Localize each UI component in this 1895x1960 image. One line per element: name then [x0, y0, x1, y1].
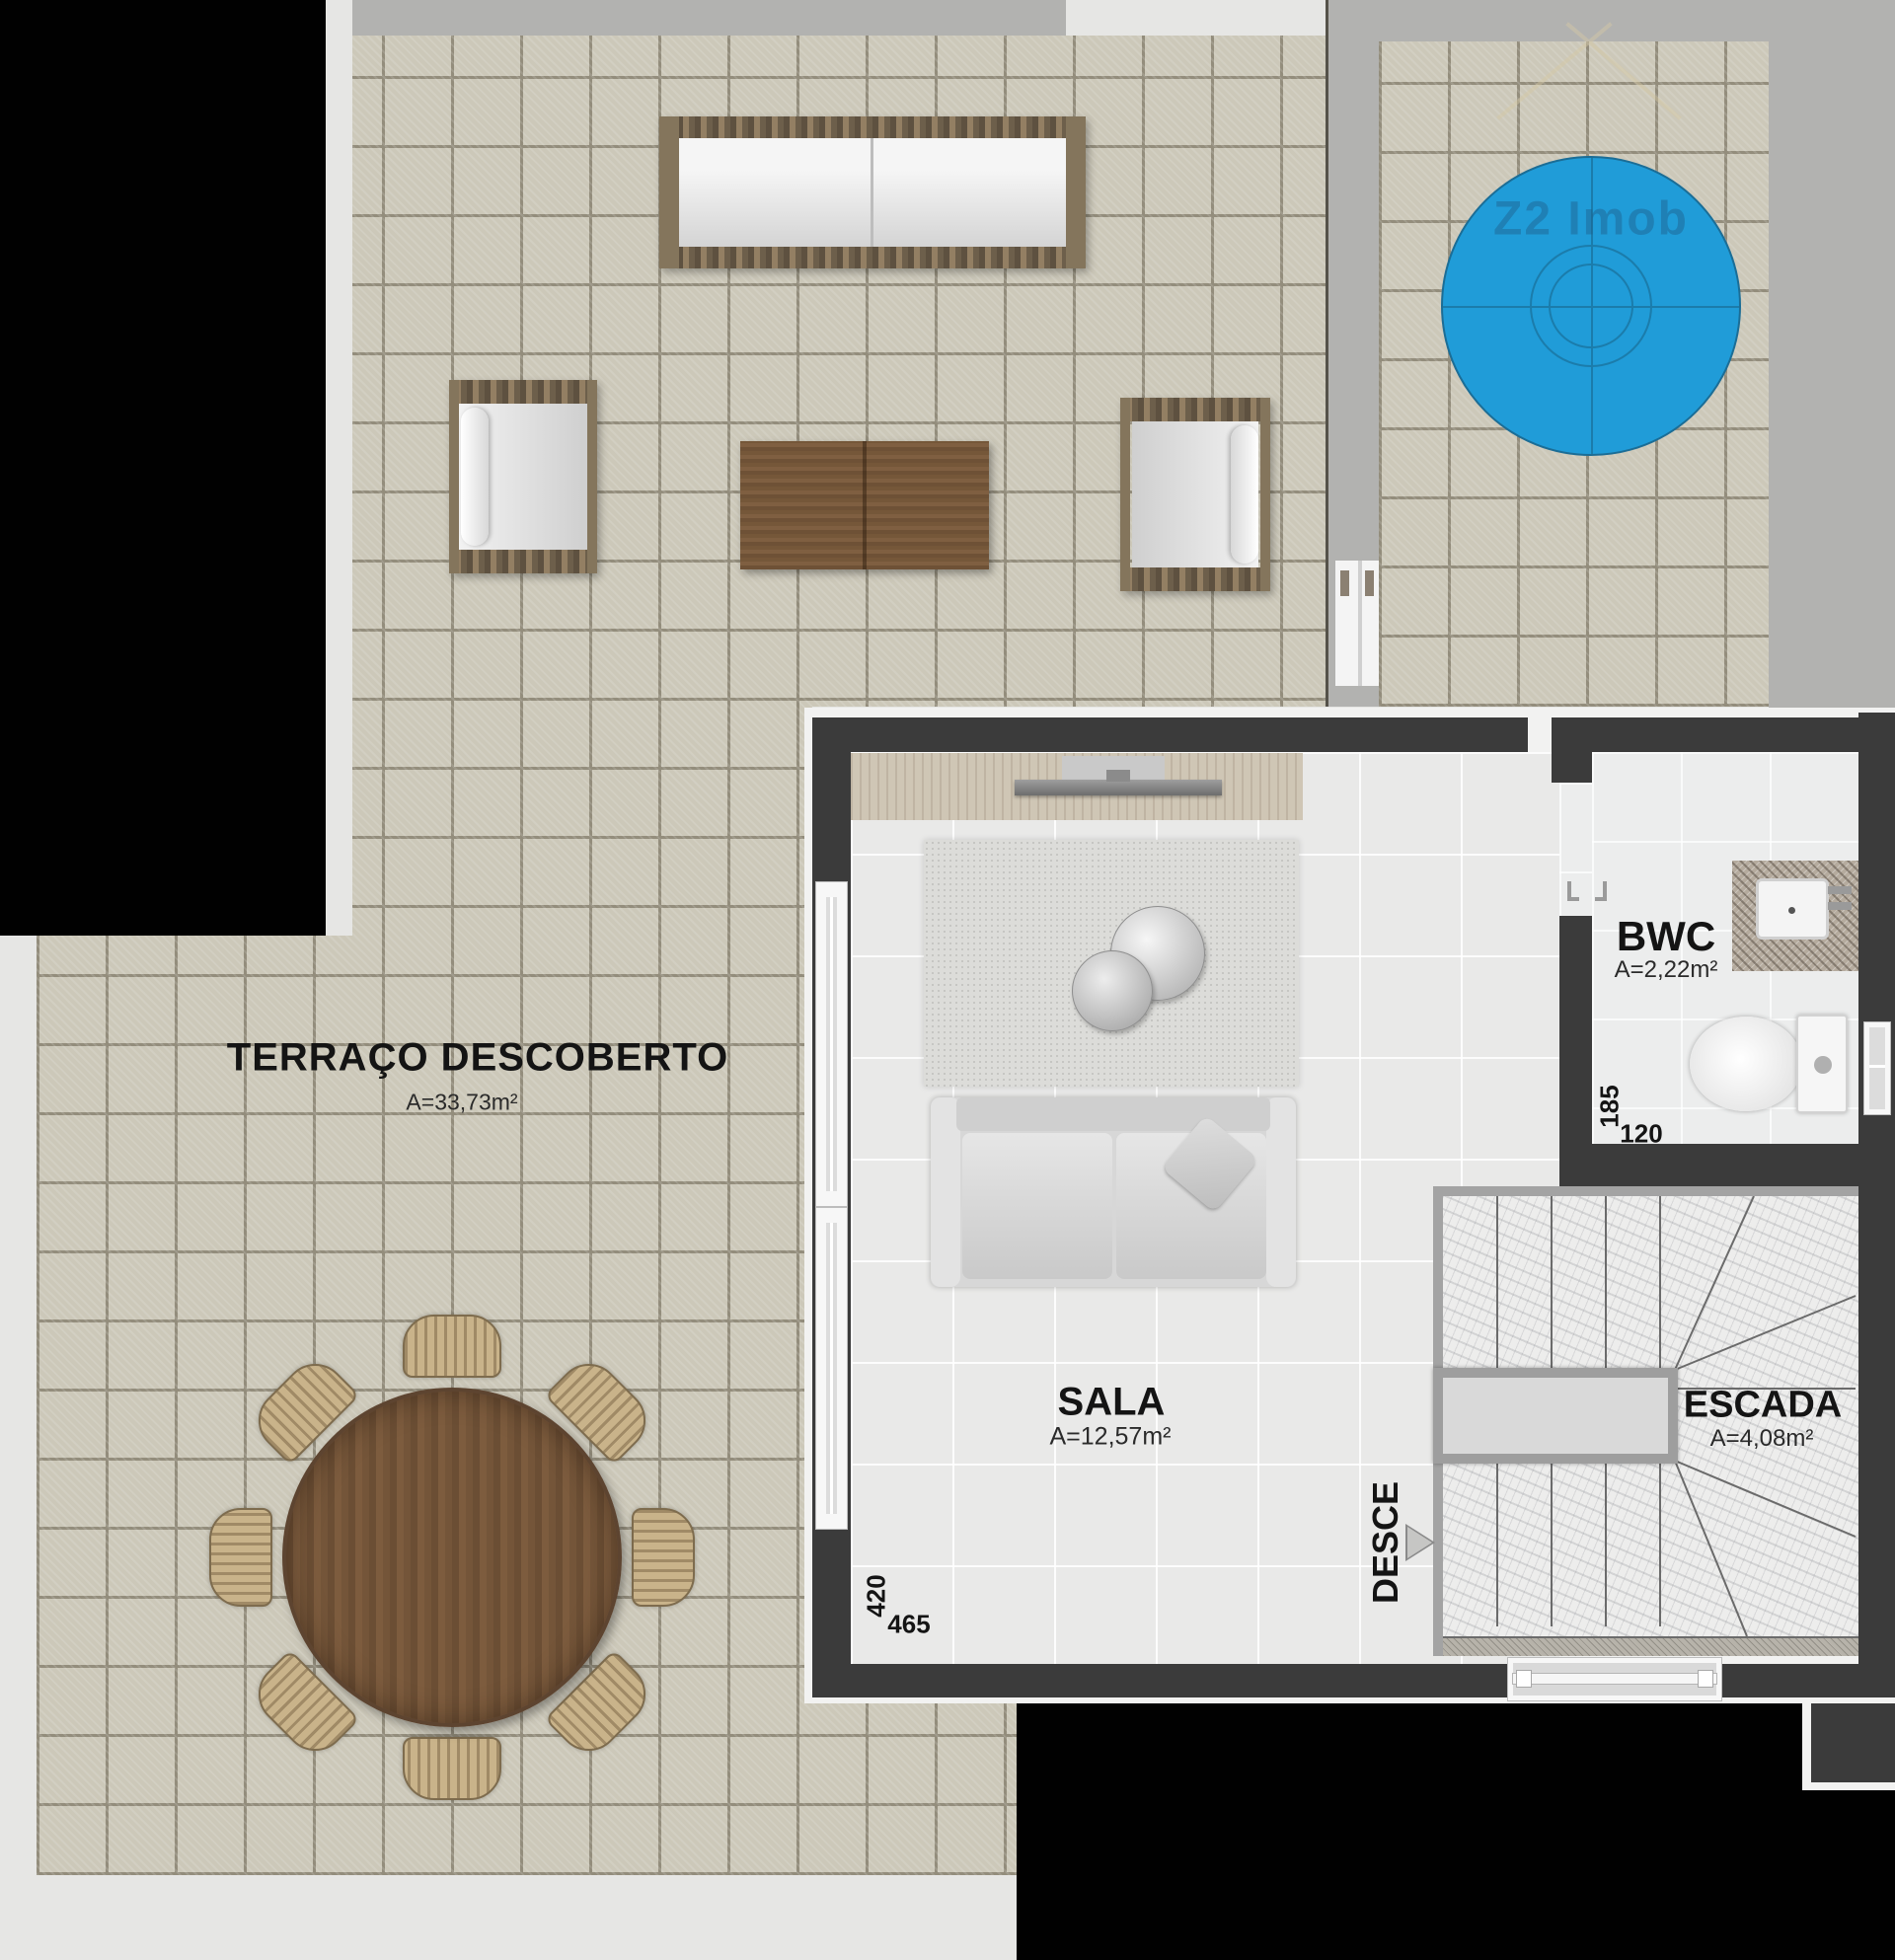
stair-window	[1507, 1657, 1722, 1701]
desce-label: DESCE	[1365, 1481, 1406, 1604]
desce-arrow-icon	[1407, 1527, 1432, 1558]
outdoor-coffee-table	[740, 441, 989, 569]
entry-door-opening	[1528, 717, 1552, 752]
unit-leg-wall	[1811, 1703, 1895, 1782]
unit-bottom-wall	[812, 1664, 1895, 1697]
door-frame-icon	[1567, 881, 1579, 901]
terrace-top-wall	[352, 0, 1066, 36]
outdoor-armchair-left	[449, 380, 597, 573]
sala-window-2	[815, 1207, 848, 1530]
dining-table	[282, 1388, 622, 1727]
sala-area-label: A=12,57m²	[1050, 1423, 1172, 1452]
door-post-icon	[1365, 570, 1374, 596]
tv	[1015, 780, 1222, 795]
bwc-label: BWC	[1617, 913, 1715, 960]
terrace-area-label: A=33,73m²	[406, 1090, 517, 1116]
escada-label: ESCADA	[1684, 1385, 1842, 1427]
terrace-door-opening	[1335, 561, 1379, 686]
stair-bottom-border	[1443, 1636, 1858, 1656]
toilet-tank	[1796, 1015, 1848, 1113]
floor-plan: Z2 Imob	[0, 0, 1895, 1960]
dim-sala-width: 465	[887, 1610, 930, 1640]
sala-sofa	[931, 1097, 1296, 1287]
bwc-bottom-wall	[1559, 1144, 1858, 1186]
bwc-sink	[1756, 878, 1829, 940]
side-table-small	[1072, 950, 1153, 1031]
dining-chair	[209, 1508, 272, 1607]
unit-top-wall	[812, 717, 1858, 752]
sala-label: SALA	[1058, 1381, 1166, 1425]
tv-mount	[1106, 770, 1130, 782]
bwc-window	[1863, 1021, 1891, 1115]
bwc-left-wall	[1559, 916, 1592, 1145]
void-block-bottom-right	[1017, 1703, 1895, 1960]
dim-bwc-width: 120	[1620, 1119, 1662, 1150]
door-leaf	[1358, 561, 1362, 686]
toilet-bowl	[1690, 1017, 1802, 1111]
void-block-top-left	[0, 0, 326, 936]
armchair-backrest	[1231, 425, 1258, 564]
watermark-text: Z2 Imob	[1493, 192, 1689, 247]
stair-landing	[1433, 1368, 1678, 1464]
outdoor-armchair-right	[1120, 398, 1270, 591]
unit-right-wall	[1858, 713, 1895, 1697]
armchair-backrest	[461, 408, 489, 546]
watermark-house-icon	[1476, 10, 1703, 148]
sala-window-1	[815, 881, 848, 1207]
outdoor-sofa	[659, 116, 1086, 268]
door-post-icon	[1340, 570, 1349, 596]
bwc-faucet-icon	[1828, 902, 1852, 910]
sofa-cushion	[962, 1133, 1112, 1279]
pool-terrace-right-wall	[1769, 41, 1895, 713]
escada-area-label: A=4,08m²	[1710, 1425, 1814, 1453]
dining-chair	[403, 1737, 501, 1800]
dining-chair	[403, 1315, 501, 1378]
bwc-faucet-icon	[1828, 886, 1852, 894]
dining-chair	[632, 1508, 695, 1607]
terrace-label: TERRAÇO DESCOBERTO	[227, 1036, 728, 1081]
bwc-area-label: A=2,22m²	[1615, 956, 1718, 984]
hall-wall-stub	[1552, 717, 1592, 783]
door-frame-icon	[1595, 881, 1607, 901]
